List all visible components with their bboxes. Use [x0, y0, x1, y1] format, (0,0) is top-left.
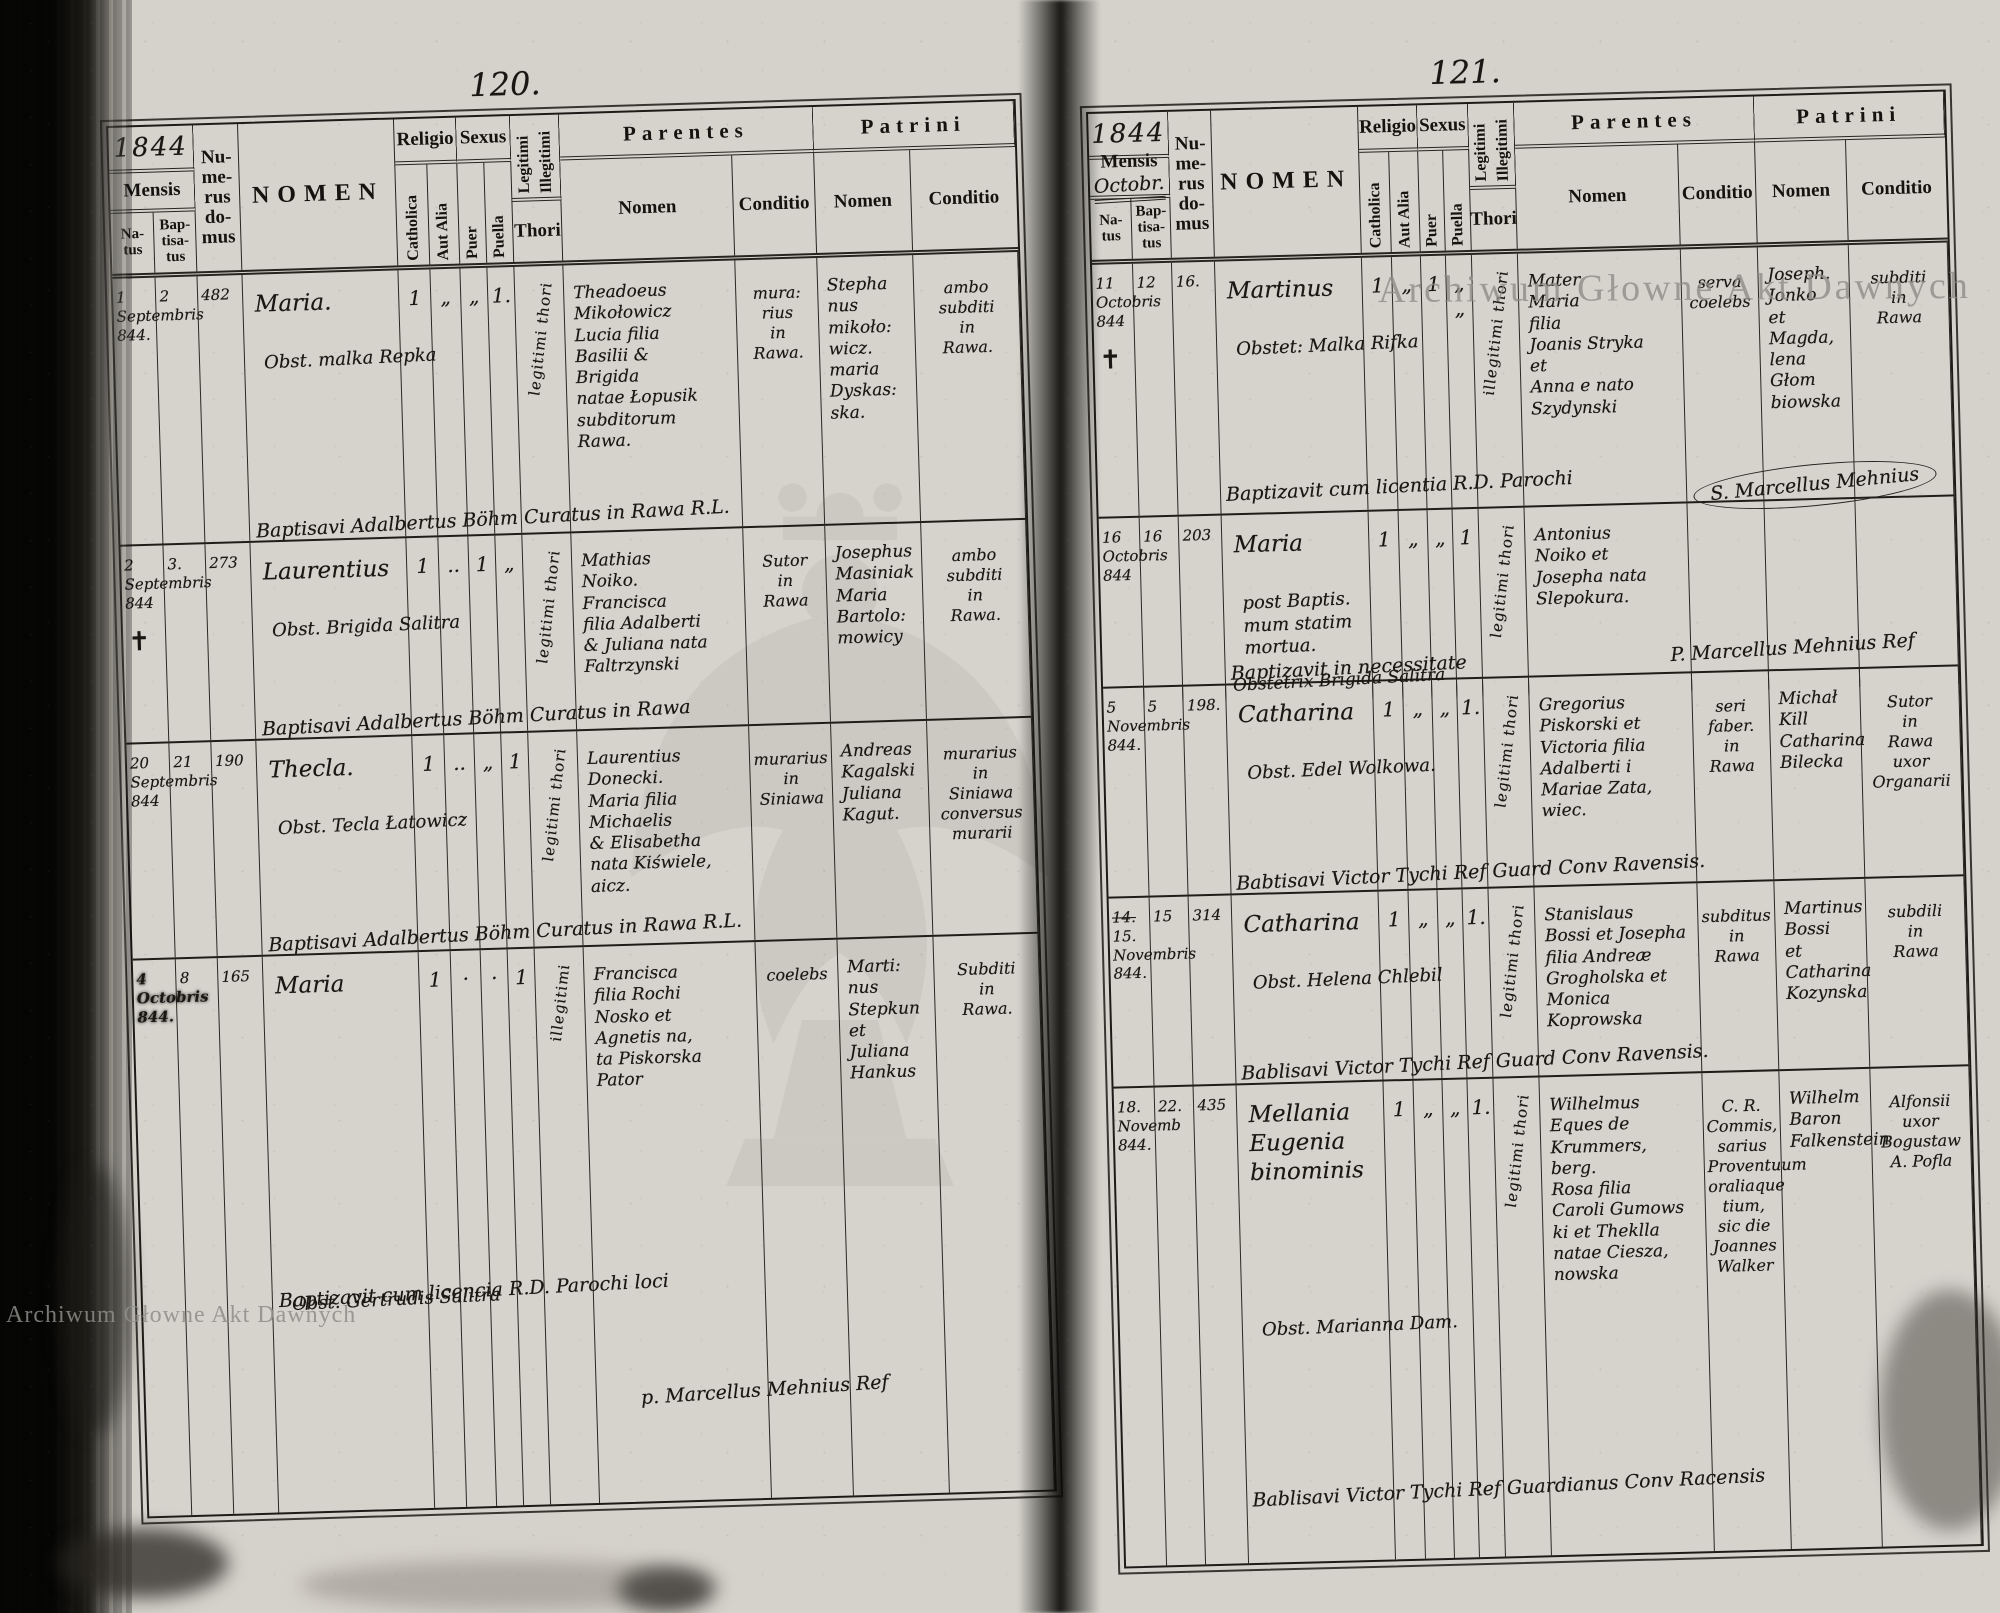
- godparents-condition: ambo subditi in Rawa.: [924, 530, 1025, 627]
- godparents-condition: subdili in Rawa: [1868, 886, 1962, 962]
- baptism-date: 21: [173, 752, 208, 772]
- aut-alia-mark: „: [1412, 906, 1434, 932]
- cell-patrini-conditio: ambo subditi in Rawa.: [921, 520, 1032, 719]
- child-name: Thecla.: [268, 752, 410, 785]
- puella-mark: 1: [1456, 525, 1475, 550]
- register-scan: Archiwum Głowne Akt Dawnych Archiwum Gło…: [0, 0, 2000, 1613]
- parents-names: Francisca filia Rochi Nosko et Agnetis n…: [587, 952, 756, 1092]
- header-nomen: NOMEN: [1211, 107, 1362, 257]
- header-parentes-conditio: Conditio: [1678, 143, 1758, 245]
- header-patrini-conditio: Conditio: [910, 147, 1018, 250]
- godparents-names: Joseph. Jonko et Magda, lena Głom biowsk…: [1761, 255, 1849, 414]
- cell-thori: legitimi thori: [1483, 678, 1535, 887]
- cell-child-name: Catharina Obst. Helena Chlebil: [1232, 892, 1384, 1084]
- puella-mark: 1.: [1466, 905, 1485, 930]
- cell-child-name: Martinus Obstet: Malka Rifka: [1215, 258, 1369, 514]
- header-aut-alia: Aut Alia: [1390, 151, 1421, 252]
- parents-condition: mura: rius in Rawa.: [739, 268, 816, 364]
- cell-house-number: 190: [211, 741, 263, 956]
- header-patrini-nomen: Nomen: [1755, 140, 1848, 242]
- child-name: Martinus: [1227, 274, 1360, 306]
- cell-baptism-date: 5: [1144, 687, 1189, 896]
- register-row: 20 Septembris 844 21 190 Thecla. Obst. T…: [126, 718, 1038, 961]
- death-cross-mark: ✝: [1099, 344, 1132, 377]
- header-catholica: Catholica: [396, 164, 431, 265]
- page-number-right: 121.: [1429, 51, 1501, 93]
- cell-parentes-nomen: Theadoeus Mikołowicz Lucia filia Basilii…: [563, 260, 743, 531]
- cell-house-number: 198.: [1184, 686, 1232, 895]
- puer-mark: „: [1441, 906, 1460, 931]
- cell-house-number: 482: [198, 275, 251, 542]
- aut-alia-mark: „: [434, 285, 458, 311]
- godparents-names: [1768, 509, 1852, 519]
- aut-alia-mark: „: [1396, 272, 1418, 298]
- puer-mark: 1: [1424, 272, 1443, 297]
- cell-baptism-date: 12: [1133, 263, 1179, 516]
- house-number: 165: [221, 967, 260, 987]
- natus-date: 15. Novembris 844.: [1112, 926, 1148, 983]
- aut-alia-mark: „: [1407, 696, 1429, 722]
- child-name: Maria.: [254, 286, 396, 319]
- puer-mark: ·: [484, 966, 505, 992]
- puella-mark: 1.: [1471, 1095, 1490, 1120]
- catholica-mark: 1: [422, 967, 447, 993]
- house-number: 273: [209, 553, 248, 573]
- cell-natus-date: 5 Novembris 844.: [1103, 688, 1150, 897]
- header-legitimi-illegitimi: Legitimi Illegitimi: [510, 115, 561, 202]
- header-religio: Religio: [1358, 105, 1417, 153]
- godparents-condition: subditi in Rawa: [1852, 253, 1946, 329]
- cell-child-name: Maria. Obst. malka Repka: [243, 270, 407, 541]
- cell-patrini-nomen: Stepha nus mikoło: wicz. maria Dyskas: s…: [817, 255, 921, 524]
- puer-mark: „: [464, 284, 485, 310]
- godparents-names: Josephus Masiniak Maria Bartolo: mowicy: [828, 533, 920, 650]
- table-header-left: 1844 Mensis Na- tus Bap- tisa- tus Nu- m…: [108, 101, 1018, 279]
- cell-child-name: Laurentius Obst. Brigida Salitra: [251, 538, 413, 739]
- table-header-right: 1844 Mensis Octobr. Na- tus Bap- tisa- t…: [1088, 92, 1948, 265]
- aut-alia-mark: ·: [454, 966, 478, 992]
- entries-right: 11 Octobris 844 ✝ 12 16. Martinus Obstet…: [1092, 242, 1982, 1566]
- header-religio: Religio: [394, 118, 457, 166]
- register-page-left: 120. 1844 Mensis Na- tus Bap- tisa- tus …: [106, 99, 1057, 1518]
- header-puella: Puella: [484, 162, 514, 263]
- godparents-condition: ambo subditi in Rawa.: [916, 262, 1017, 359]
- cell-baptism-date: 21: [170, 742, 218, 957]
- cell-natus-date: 20 Septembris 844: [126, 743, 176, 958]
- cell-house-number: 314: [1189, 895, 1237, 1084]
- page-gutter-shadow: [1018, 0, 1100, 1613]
- register-row: 11 Octobris 844 ✝ 12 16. Martinus Obstet…: [1092, 242, 1954, 518]
- godparents-names: Stepha nus mikoło: wicz. maria Dyskas: s…: [820, 265, 914, 424]
- header-patrini: Patrini: [1754, 92, 1945, 143]
- catholica-mark: 1: [1366, 273, 1390, 299]
- header-parentes: Parentes: [559, 107, 814, 161]
- aut-alia-mark: ..: [448, 750, 472, 776]
- header-baptisatus: Bap- tisa- tus: [154, 211, 197, 272]
- aut-alia-mark: „: [1402, 526, 1424, 552]
- register-page-right: 121. 1844 Mensis Octobr. Na- tus Bap- ti…: [1086, 89, 1984, 1568]
- header-parentes: Parentes: [1514, 97, 1755, 149]
- puella-mark: 1: [505, 749, 526, 775]
- entries-left: 1 Septembris 844. 2 482 Maria. Obst. mal…: [113, 252, 1055, 1516]
- cell-thori: legitimi thori: [528, 731, 583, 946]
- house-number: 198.: [1187, 696, 1223, 716]
- catholica-mark: 1: [1382, 907, 1406, 933]
- catholica-mark: 1: [402, 286, 427, 312]
- cell-parentes-conditio: mura: rius in Rawa.: [736, 258, 825, 526]
- baptism-date: 5: [1147, 697, 1180, 717]
- child-name: Mellania Eugenia binominis: [1248, 1098, 1382, 1188]
- puella-mark: „ „: [1450, 271, 1470, 321]
- catholica-mark: 1: [1387, 1097, 1411, 1123]
- header-patrini-nomen: Nomen: [814, 150, 913, 253]
- register-row: 4 Octobris 844. 8 165 Maria Obst. Gertru…: [133, 934, 1055, 1517]
- header-parentes-nomen: Nomen: [560, 155, 735, 260]
- ink-smudge: [60, 1165, 130, 1435]
- cell-parentes-nomen: Francisca filia Rochi Nosko et Agnetis n…: [584, 942, 773, 1503]
- child-name: Maria: [275, 968, 417, 1001]
- header-sexus: Sexus: [1417, 104, 1470, 151]
- godparents-condition: murarius in Siniawa conversus murarii: [930, 728, 1031, 845]
- puella-mark: 1: [511, 965, 532, 991]
- godparents-names: Michał Kill Catharina Bilecka: [1772, 679, 1858, 774]
- natus-date: 4 Octobris 844.: [136, 969, 174, 1026]
- house-number: 190: [215, 751, 254, 771]
- natus-date: 11 Octobris 844: [1095, 274, 1131, 331]
- baptism-date: 15: [1153, 907, 1186, 927]
- parents-condition: subditus in Rawa: [1701, 891, 1773, 967]
- header-mensis: Mensis Octobr.: [1089, 158, 1170, 200]
- cell-house-number: 16.: [1172, 262, 1221, 515]
- puer-mark: „: [1431, 526, 1450, 551]
- header-patrini-conditio: Conditio: [1846, 138, 1948, 241]
- register-row: 2 Septembris 844 ✝ 3. 273 Laurentius Obs…: [120, 520, 1031, 745]
- page-number-left: 120.: [469, 63, 541, 105]
- register-row: 5 Novembris 844. 5 198. Catharina Obst. …: [1103, 666, 1964, 898]
- cell-patrini-conditio: subditi in Rawa: [1848, 242, 1954, 497]
- cell-child-name: Maria Obst. Gertrudis Salitra: [263, 952, 435, 1512]
- parents-condition: coelebs: [759, 950, 835, 986]
- godparents-names: Martinus Bossi et Catharina Kozynska: [1778, 889, 1865, 1005]
- natus-date: 16 Octobris 844: [1102, 528, 1138, 585]
- catholica-mark: 1: [1377, 697, 1401, 723]
- thori-value: illegitimi: [547, 963, 574, 1041]
- godparents-names: Wilhelm Baron Falkenstein: [1782, 1079, 1868, 1153]
- baptism-date: 12: [1136, 273, 1169, 293]
- puella-mark: 1.: [491, 283, 512, 309]
- cell-baptism-date: 16: [1140, 517, 1184, 705]
- parents-condition: seri faber. in Rawa: [1695, 681, 1767, 777]
- puer-mark: „: [1446, 1095, 1465, 1120]
- cell-thori: legitimi thori: [515, 265, 572, 532]
- cell-child-name: Catharina Obst. Edel Wolkowa.: [1226, 682, 1379, 894]
- puer-mark: 1: [472, 552, 493, 578]
- cell-patrini-conditio: subdili in Rawa: [1865, 876, 1969, 1067]
- cell-house-number: 203: [1179, 516, 1227, 705]
- cell-house-number: 273: [206, 543, 257, 740]
- house-number: 482: [201, 285, 240, 305]
- cell-baptism-date: 3.: [164, 544, 211, 741]
- register-row: 14. 15. Novembris 844. 15 314 Catharina …: [1109, 876, 1970, 1088]
- header-numerus-domus: Nu- me- rus do- mus: [1168, 111, 1215, 258]
- catholica-mark: 1: [410, 553, 435, 579]
- struck-date: 14.: [1112, 908, 1147, 928]
- death-cross-mark: ✝: [128, 626, 163, 660]
- header-catholica: Catholica: [1360, 152, 1393, 253]
- header-baptisatus: Bap- tisa- tus: [1131, 198, 1172, 259]
- natus-date: 20 Septembris 844: [130, 753, 168, 810]
- register-row: 1 Septembris 844. 2 482 Maria. Obst. mal…: [113, 252, 1027, 547]
- ink-smudge: [58, 1528, 228, 1598]
- baptism-date: 16: [1143, 527, 1176, 547]
- puella-mark: „: [499, 551, 520, 577]
- aut-alia-mark: „: [1417, 1096, 1439, 1122]
- cell-natus-date: 16 Octobris 844: [1099, 518, 1145, 707]
- header-parentes-nomen: Nomen: [1515, 145, 1680, 249]
- parents-condition: C. R. Commis, sarius Proventuum oraliaqu…: [1705, 1081, 1780, 1277]
- header-aut-alia: Aut Alia: [427, 164, 460, 265]
- child-name: Catharina: [1243, 908, 1376, 940]
- child-name: Catharina: [1238, 698, 1371, 730]
- natus-date: 5 Novembris 844.: [1106, 698, 1142, 755]
- cell-patrini-conditio: ambo subditi in Rawa.: [913, 252, 1026, 521]
- header-puer: Puer: [1418, 151, 1446, 252]
- cell-child-name: Thecla. Obst. Tecla Łatowicz: [257, 736, 419, 955]
- baptism-date: 8: [180, 968, 215, 988]
- godparents-condition: Sutor in Rawa uxor Organarii: [1863, 676, 1958, 792]
- header-thori: Thori: [1470, 189, 1518, 250]
- baptism-date: 3.: [167, 554, 202, 574]
- baptism-date: 22.: [1158, 1097, 1191, 1117]
- register-row: 16 Octobris 844 16 203 Maria post Baptis…: [1099, 496, 1959, 688]
- house-number: 314: [1192, 906, 1228, 926]
- parents-names: Wilhelmus Eques de Krummers, berg. Rosa …: [1543, 1083, 1704, 1286]
- cell-baptism-date: 15: [1150, 897, 1194, 1086]
- aut-alia-mark: ..: [442, 553, 466, 579]
- register-row: 18. Novemb 844. 22. 435 Mellania Eugenia…: [1114, 1066, 1982, 1566]
- godparents-condition: [1858, 507, 1951, 523]
- parents-condition: [1691, 511, 1761, 527]
- header-puer: Puer: [457, 163, 487, 264]
- paper-stain: [300, 1560, 720, 1610]
- header-nomen: NOMEN: [238, 119, 398, 270]
- baptism-date: 2: [159, 286, 194, 306]
- house-number: 435: [1197, 1095, 1233, 1115]
- cell-patrini-nomen: Marti: nus Stepkun et Juliana Hankus: [837, 937, 949, 1496]
- parents-condition: murarius in Siniawa: [753, 734, 830, 810]
- header-sexus: Sexus: [456, 116, 512, 164]
- puer-mark: „: [478, 750, 499, 776]
- cell-patrini-conditio: Sutor in Rawa uxor Organarii: [1859, 666, 1964, 877]
- house-number: 203: [1182, 526, 1218, 546]
- thori-value: legitimi thori: [1502, 1094, 1534, 1208]
- cell-patrini-conditio: [1855, 496, 1959, 686]
- header-numerus-domus: Nu- me- rus do- mus: [193, 124, 243, 271]
- puella-mark: 1.: [1461, 695, 1480, 720]
- header-puella: Puella: [1443, 150, 1471, 251]
- header-parentes-conditio: Conditio: [732, 153, 816, 255]
- puer-mark: „: [1435, 696, 1454, 721]
- parents-condition: serva coelebs: [1684, 258, 1755, 314]
- natus-date: 18. Novemb 844.: [1117, 1098, 1153, 1155]
- child-name: Laurentius: [262, 554, 404, 587]
- parents-condition: Sutor in Rawa: [747, 536, 824, 612]
- catholica-mark: 1: [416, 751, 441, 777]
- catholica-mark: 1: [1372, 527, 1396, 553]
- godparents-names: Marti: nus Stepkun et Juliana Hankus: [841, 947, 934, 1085]
- parents-names: Theadoeus Mikołowicz Lucia filia Basilii…: [567, 270, 737, 453]
- godparents-names: Andreas Kagalski Juliana Kagut.: [834, 731, 926, 827]
- cell-thori: legitimi thori: [523, 533, 578, 730]
- header-thori: Thori: [513, 201, 564, 262]
- cell-natus-date: 14. 15. Novembris 844.: [1109, 898, 1155, 1087]
- house-number: 16.: [1176, 272, 1212, 292]
- header-legitimi-illegitimi: Legitimi Illegitimi: [1468, 103, 1516, 190]
- godparents-condition: Alfonsii uxor Bogustaw A. Pofla: [1873, 1076, 1968, 1172]
- child-name: Maria: [1233, 528, 1366, 560]
- header-patrini: Patrini: [813, 101, 1015, 153]
